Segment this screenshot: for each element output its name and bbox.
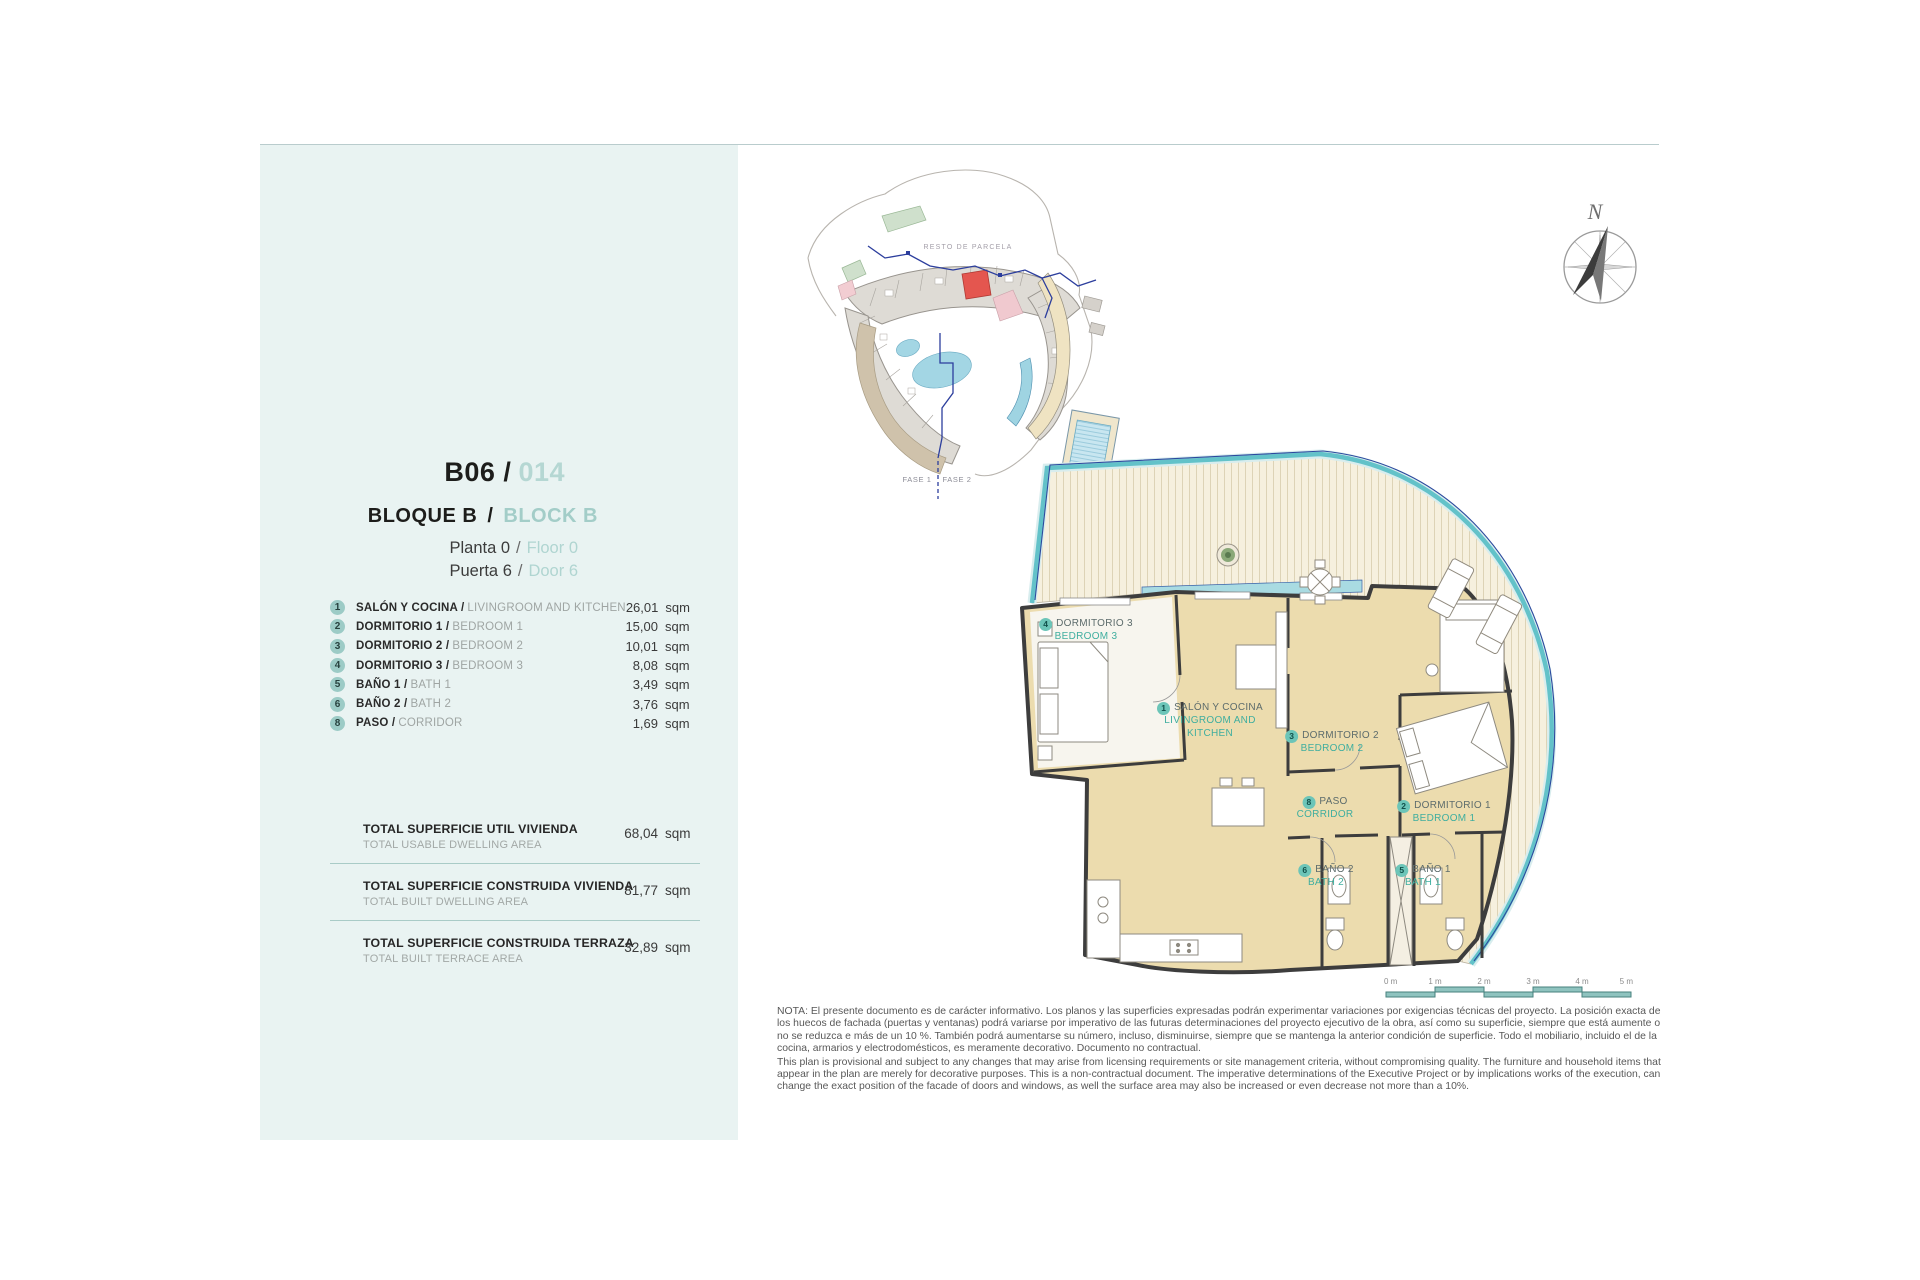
floor-divider: / bbox=[516, 539, 521, 557]
north-label: N bbox=[1587, 199, 1604, 224]
block-es: BLOQUE B bbox=[368, 505, 478, 527]
scale-bar: 0 m 1 m 2 m 3 m 4 m 5 m bbox=[1383, 975, 1635, 1005]
unit-title: B06 /014 bbox=[260, 457, 565, 488]
total-block-built: TOTAL SUPERFICIE CONSTRUIDA VIVIENDA TOT… bbox=[363, 879, 693, 908]
door-line: Puerta 6/Door 6 bbox=[260, 562, 578, 581]
disclaimer-es: NOTA: El presente documento es de caráct… bbox=[777, 1006, 1663, 1056]
room-label-es: DORMITORIO 1 bbox=[1414, 800, 1491, 813]
unit-code: B06 / bbox=[444, 457, 511, 487]
room-area-unit: sqm bbox=[665, 639, 693, 654]
room-label-bedroom1: 2DORMITORIO 1 BEDROOM 1 bbox=[1397, 800, 1491, 826]
room-name: SALÓN Y COCINA /LIVINGROOM AND KITCHEN bbox=[356, 602, 626, 614]
total-value: 81,77sqm bbox=[624, 883, 693, 898]
unit-number: 014 bbox=[518, 457, 565, 487]
room-name-es: DORMITORIO 2 / bbox=[356, 640, 449, 652]
room-label-en: BATH 1 bbox=[1395, 877, 1450, 890]
room-name-es: SALÓN Y COCINA / bbox=[356, 602, 464, 614]
block-divider: / bbox=[487, 505, 493, 527]
room-label-en: CORRIDOR bbox=[1297, 809, 1354, 822]
room-area-unit: sqm bbox=[665, 716, 693, 731]
totals-divider bbox=[330, 920, 700, 921]
room-name-en: CORRIDOR bbox=[398, 717, 462, 729]
room-number-badge: 2 bbox=[330, 619, 345, 634]
room-label-bedroom2: 3DORMITORIO 2 BEDROOM 2 bbox=[1285, 730, 1379, 756]
room-number-badge: 1 bbox=[330, 600, 345, 615]
room-label-es: SALÓN Y COCINA bbox=[1174, 702, 1263, 715]
site-highlight-unit bbox=[962, 270, 991, 299]
room-label-en: BEDROOM 1 bbox=[1397, 813, 1491, 826]
total-value-number: 81,77 bbox=[624, 883, 658, 898]
floor-line: Planta 0/Floor 0 bbox=[260, 539, 578, 558]
total-block-terrace: TOTAL SUPERFICIE CONSTRUIDA TERRAZA TOTA… bbox=[363, 936, 693, 965]
room-name-es: BAÑO 1 / bbox=[356, 679, 407, 691]
room-label-es: BAÑO 1 bbox=[1412, 864, 1450, 877]
site-green-areas bbox=[842, 206, 926, 282]
sidebar-panel: B06 /014 BLOQUE B/BLOCK B Planta 0/Floor… bbox=[260, 145, 738, 1140]
room-area-value: 10,01 bbox=[625, 639, 658, 654]
room-name-en: LIVINGROOM AND KITCHEN bbox=[467, 602, 625, 614]
room-area-value: 3,49 bbox=[633, 677, 658, 692]
total-value: 32,89sqm bbox=[624, 940, 693, 955]
room-number-badge: 5 bbox=[330, 677, 345, 692]
room-row: 1 SALÓN Y COCINA /LIVINGROOM AND KITCHEN… bbox=[330, 598, 693, 617]
total-block-usable: TOTAL SUPERFICIE UTIL VIVIENDA TOTAL USA… bbox=[363, 822, 693, 851]
room-name: BAÑO 2 /BATH 2 bbox=[356, 698, 593, 710]
room-area-value: 15,00 bbox=[625, 619, 658, 634]
page: B06 /014 BLOQUE B/BLOCK B Planta 0/Floor… bbox=[0, 0, 1920, 1280]
resto-de-parcela-label: RESTO DE PARCELA bbox=[924, 244, 1013, 251]
room-area-unit: sqm bbox=[665, 619, 693, 634]
room-name-es: DORMITORIO 1 / bbox=[356, 621, 449, 633]
site-water-feature bbox=[1007, 358, 1032, 426]
room-number-badge: 6 bbox=[330, 697, 345, 712]
room-row: 4 DORMITORIO 3 /BEDROOM 3 8,08sqm bbox=[330, 656, 693, 675]
room-name: DORMITORIO 2 /BEDROOM 2 bbox=[356, 640, 593, 652]
room-name: DORMITORIO 3 /BEDROOM 3 bbox=[356, 660, 593, 672]
room-label-en: LIVINGROOM AND KITCHEN bbox=[1147, 715, 1273, 740]
room-label-es: DORMITORIO 3 bbox=[1056, 618, 1133, 631]
room-label-livingroom: 1SALÓN Y COCINA LIVINGROOM AND KITCHEN bbox=[1147, 702, 1273, 740]
scale-tick: 3 m bbox=[1526, 977, 1540, 986]
room-row: 5 BAÑO 1 /BATH 1 3,49sqm bbox=[330, 675, 693, 694]
room-label-es: DORMITORIO 2 bbox=[1302, 730, 1379, 743]
room-number-badge: 3 bbox=[330, 639, 345, 654]
total-value-number: 68,04 bbox=[624, 826, 658, 841]
room-area: 3,49sqm bbox=[593, 677, 693, 692]
room-label-en: BATH 2 bbox=[1298, 877, 1353, 890]
room-name-es: DORMITORIO 3 / bbox=[356, 660, 449, 672]
room-name: BAÑO 1 /BATH 1 bbox=[356, 679, 593, 691]
room-label-badge: 8 bbox=[1302, 796, 1315, 809]
fase1-label: FASE 1 bbox=[902, 475, 931, 484]
room-label-corridor: 8PASO CORRIDOR bbox=[1297, 796, 1354, 822]
room-name-es: BAÑO 2 / bbox=[356, 698, 407, 710]
room-area: 26,01sqm bbox=[626, 600, 694, 615]
room-area-unit: sqm bbox=[665, 697, 693, 712]
room-area: 1,69sqm bbox=[593, 716, 693, 731]
room-area-unit: sqm bbox=[665, 600, 693, 615]
door-es: Puerta 6 bbox=[450, 562, 512, 580]
room-name: PASO /CORRIDOR bbox=[356, 717, 593, 729]
totals-divider bbox=[330, 863, 700, 864]
total-value-unit: sqm bbox=[665, 826, 693, 841]
room-area: 10,01sqm bbox=[593, 639, 693, 654]
site-pools bbox=[894, 336, 975, 393]
fase2-label: FASE 2 bbox=[942, 475, 971, 484]
room-label-badge: 2 bbox=[1397, 800, 1410, 813]
room-area-value: 1,69 bbox=[633, 716, 658, 731]
room-name-en: BATH 2 bbox=[410, 698, 451, 710]
room-area: 8,08sqm bbox=[593, 658, 693, 673]
room-name-en: BEDROOM 2 bbox=[452, 640, 523, 652]
room-name-en: BEDROOM 3 bbox=[452, 660, 523, 672]
scale-tick: 4 m bbox=[1575, 977, 1589, 986]
scale-bar-segments bbox=[1386, 987, 1631, 997]
block-line: BLOQUE B/BLOCK B bbox=[260, 505, 598, 528]
room-label-bedroom3: 4DORMITORIO 3 BEDROOM 3 bbox=[1039, 618, 1133, 644]
room-area-value: 3,76 bbox=[633, 697, 658, 712]
room-label-badge: 6 bbox=[1298, 864, 1311, 877]
disclaimer: NOTA: El presente documento es de caráct… bbox=[777, 1006, 1663, 1094]
room-label-badge: 5 bbox=[1395, 864, 1408, 877]
total-value-unit: sqm bbox=[665, 940, 693, 955]
room-label-es: BAÑO 2 bbox=[1315, 864, 1353, 877]
room-number-badge: 4 bbox=[330, 658, 345, 673]
room-name-en: BEDROOM 1 bbox=[452, 621, 523, 633]
scale-tick: 1 m bbox=[1428, 977, 1442, 986]
room-area-value: 26,01 bbox=[626, 600, 659, 615]
total-value-number: 32,89 bbox=[624, 940, 658, 955]
scale-ticks: 0 m 1 m 2 m 3 m 4 m 5 m bbox=[1384, 977, 1633, 986]
compass: N bbox=[1545, 195, 1655, 310]
room-label-bath1: 5BAÑO 1 BATH 1 bbox=[1395, 864, 1450, 890]
room-area-value: 8,08 bbox=[633, 658, 658, 673]
room-area-unit: sqm bbox=[665, 658, 693, 673]
room-label-badge: 4 bbox=[1039, 618, 1052, 631]
floor-es: Planta 0 bbox=[450, 539, 511, 557]
room-label-badge: 1 bbox=[1157, 702, 1170, 715]
room-area: 3,76sqm bbox=[593, 697, 693, 712]
north-arrow-icon bbox=[1564, 226, 1636, 303]
block-en: BLOCK B bbox=[503, 505, 598, 527]
floor-plan-svg bbox=[990, 440, 1580, 1000]
room-label-en: BEDROOM 2 bbox=[1285, 743, 1379, 756]
room-label-bath2: 6BAÑO 2 BATH 2 bbox=[1298, 864, 1353, 890]
room-area: 15,00sqm bbox=[593, 619, 693, 634]
room-row: 6 BAÑO 2 /BATH 2 3,76sqm bbox=[330, 694, 693, 713]
room-name: DORMITORIO 1 /BEDROOM 1 bbox=[356, 621, 593, 633]
room-name-en: BATH 1 bbox=[410, 679, 451, 691]
room-row: 3 DORMITORIO 2 /BEDROOM 2 10,01sqm bbox=[330, 637, 693, 656]
floor-en: Floor 0 bbox=[527, 539, 578, 557]
door-en: Door 6 bbox=[528, 562, 578, 580]
room-label-badge: 3 bbox=[1285, 730, 1298, 743]
room-list: 1 SALÓN Y COCINA /LIVINGROOM AND KITCHEN… bbox=[330, 598, 693, 733]
room-area-unit: sqm bbox=[665, 677, 693, 692]
scale-tick: 0 m bbox=[1384, 977, 1398, 986]
room-label-en: BEDROOM 3 bbox=[1039, 631, 1133, 644]
room-number-badge: 8 bbox=[330, 716, 345, 731]
disclaimer-en: This plan is provisional and subject to … bbox=[777, 1057, 1663, 1094]
room-name-es: PASO / bbox=[356, 717, 395, 729]
total-value: 68,04sqm bbox=[624, 826, 693, 841]
room-row: 8 PASO /CORRIDOR 1,69sqm bbox=[330, 714, 693, 733]
total-value-unit: sqm bbox=[665, 883, 693, 898]
door-divider: / bbox=[518, 562, 523, 580]
scale-tick: 5 m bbox=[1620, 977, 1634, 986]
scale-tick: 2 m bbox=[1477, 977, 1491, 986]
room-row: 2 DORMITORIO 1 /BEDROOM 1 15,00sqm bbox=[330, 617, 693, 636]
room-label-es: PASO bbox=[1319, 796, 1347, 809]
